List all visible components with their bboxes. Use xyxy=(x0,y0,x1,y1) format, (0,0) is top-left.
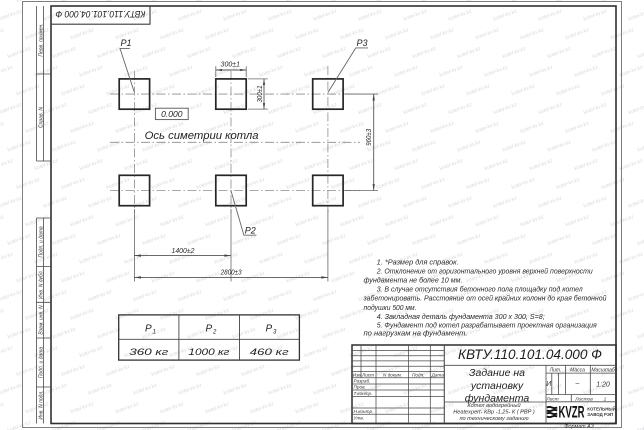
svg-text:забетонировать. Расстояние от: забетонировать. Расстояние от осей крайн… xyxy=(363,293,607,302)
svg-text:Листов: Листов xyxy=(574,397,593,403)
svg-text:Лист: Лист xyxy=(361,372,374,377)
svg-text:P2: P2 xyxy=(245,226,256,236)
svg-text:по техническому заданию: по техническому заданию xyxy=(459,416,529,422)
svg-text:Разраб.: Разраб. xyxy=(354,379,371,384)
svg-text:P: P xyxy=(145,324,152,335)
svg-text:Подп.: Подп. xyxy=(412,372,424,377)
svg-text:установку: установку xyxy=(470,380,524,392)
svg-text:Лист: Лист xyxy=(545,397,558,403)
svg-text:Подп. и дата: Подп. и дата xyxy=(38,347,44,379)
svg-text:Подп. и дата: Подп. и дата xyxy=(38,226,44,258)
svg-text:Т.контр.: Т.контр. xyxy=(354,391,373,396)
svg-text:Формат А3: Формат А3 xyxy=(564,424,594,430)
svg-text:2. Отклонение от горизонтально: 2. Отклонение от горизонтального уровня … xyxy=(376,267,593,276)
svg-text:460 кг: 460 кг xyxy=(250,347,289,358)
svg-text:P: P xyxy=(206,324,213,335)
svg-text:KVZR: KVZR xyxy=(559,403,585,421)
svg-text:КВТУ.110.101.04.000 Ф: КВТУ.110.101.04.000 Ф xyxy=(458,346,602,362)
svg-text:3. В случае отсутствия бетонно: 3. В случае отсутствия бетонного пола пл… xyxy=(377,284,583,293)
svg-text:Н.контр.: Н.контр. xyxy=(354,409,374,414)
svg-text:1000 кг: 1000 кг xyxy=(188,347,229,358)
svg-text:360 кг: 360 кг xyxy=(129,347,168,358)
svg-text:подушки 500 мм.: подушки 500 мм. xyxy=(364,303,417,312)
svg-text:4. Закладная деталь фундамента: 4. Закладная деталь фундамента 300 х 300… xyxy=(377,312,545,321)
svg-text:КВТУ.110.101.04.000 Ф: КВТУ.110.101.04.000 Ф xyxy=(55,8,145,19)
svg-text:P: P xyxy=(266,324,273,335)
svg-text:Лит.: Лит. xyxy=(549,368,562,374)
svg-text:ЗАВОД РЭП: ЗАВОД РЭП xyxy=(587,412,613,417)
svg-text:–: – xyxy=(575,380,580,387)
svg-text:Heatexpert- КВр -1,25- К ( РВР: Heatexpert- КВр -1,25- К ( РВР ) xyxy=(453,410,535,416)
svg-text:2: 2 xyxy=(212,330,217,336)
svg-text:Масштаб: Масштаб xyxy=(591,368,615,374)
svg-text:1. *Размер для справок.: 1. *Размер для справок. xyxy=(377,258,459,267)
svg-text:N докум.: N докум. xyxy=(383,372,402,377)
svg-text:Дата: Дата xyxy=(431,372,445,377)
svg-text:по нагрузкам на фундамент.: по нагрузкам на фундамент. xyxy=(364,329,468,338)
svg-text:фундамента не более 10 мм.: фундамента не более 10 мм. xyxy=(364,276,463,285)
svg-text:Котел водогрейный: Котел водогрейный xyxy=(467,402,520,409)
svg-text:2800±3: 2800±3 xyxy=(220,270,242,277)
svg-text:Ось симетрии котла: Ось симетрии котла xyxy=(145,130,259,142)
svg-text:1: 1 xyxy=(153,330,156,336)
svg-text:P3: P3 xyxy=(357,38,368,48)
svg-text:1400±2: 1400±2 xyxy=(172,248,195,255)
svg-text:Перв. примен.: Перв. примен. xyxy=(38,23,44,56)
svg-text:300±1: 300±1 xyxy=(221,62,241,69)
svg-text:960±3: 960±3 xyxy=(366,129,373,146)
svg-text:Справ. N: Справ. N xyxy=(38,107,44,128)
svg-text:300±1: 300±1 xyxy=(257,85,264,102)
svg-text:0.000: 0.000 xyxy=(161,109,183,119)
svg-text:P1: P1 xyxy=(121,38,132,48)
svg-text:1:20: 1:20 xyxy=(596,382,610,389)
svg-text:Инв. N дубл.: Инв. N дубл. xyxy=(38,270,44,299)
svg-text:1: 1 xyxy=(604,397,607,403)
svg-text:Пров.: Пров. xyxy=(354,385,366,390)
svg-text:Взам. инв. N: Взам. инв. N xyxy=(38,305,44,335)
svg-text:Задание на: Задание на xyxy=(469,367,525,379)
svg-text:КОТЕЛЬНЫЙ: КОТЕЛЬНЫЙ xyxy=(587,407,616,412)
svg-text:Масса: Масса xyxy=(570,368,585,374)
svg-text:Утв.: Утв. xyxy=(354,416,365,421)
svg-text:Инв. N подл.: Инв. N подл. xyxy=(38,390,44,419)
